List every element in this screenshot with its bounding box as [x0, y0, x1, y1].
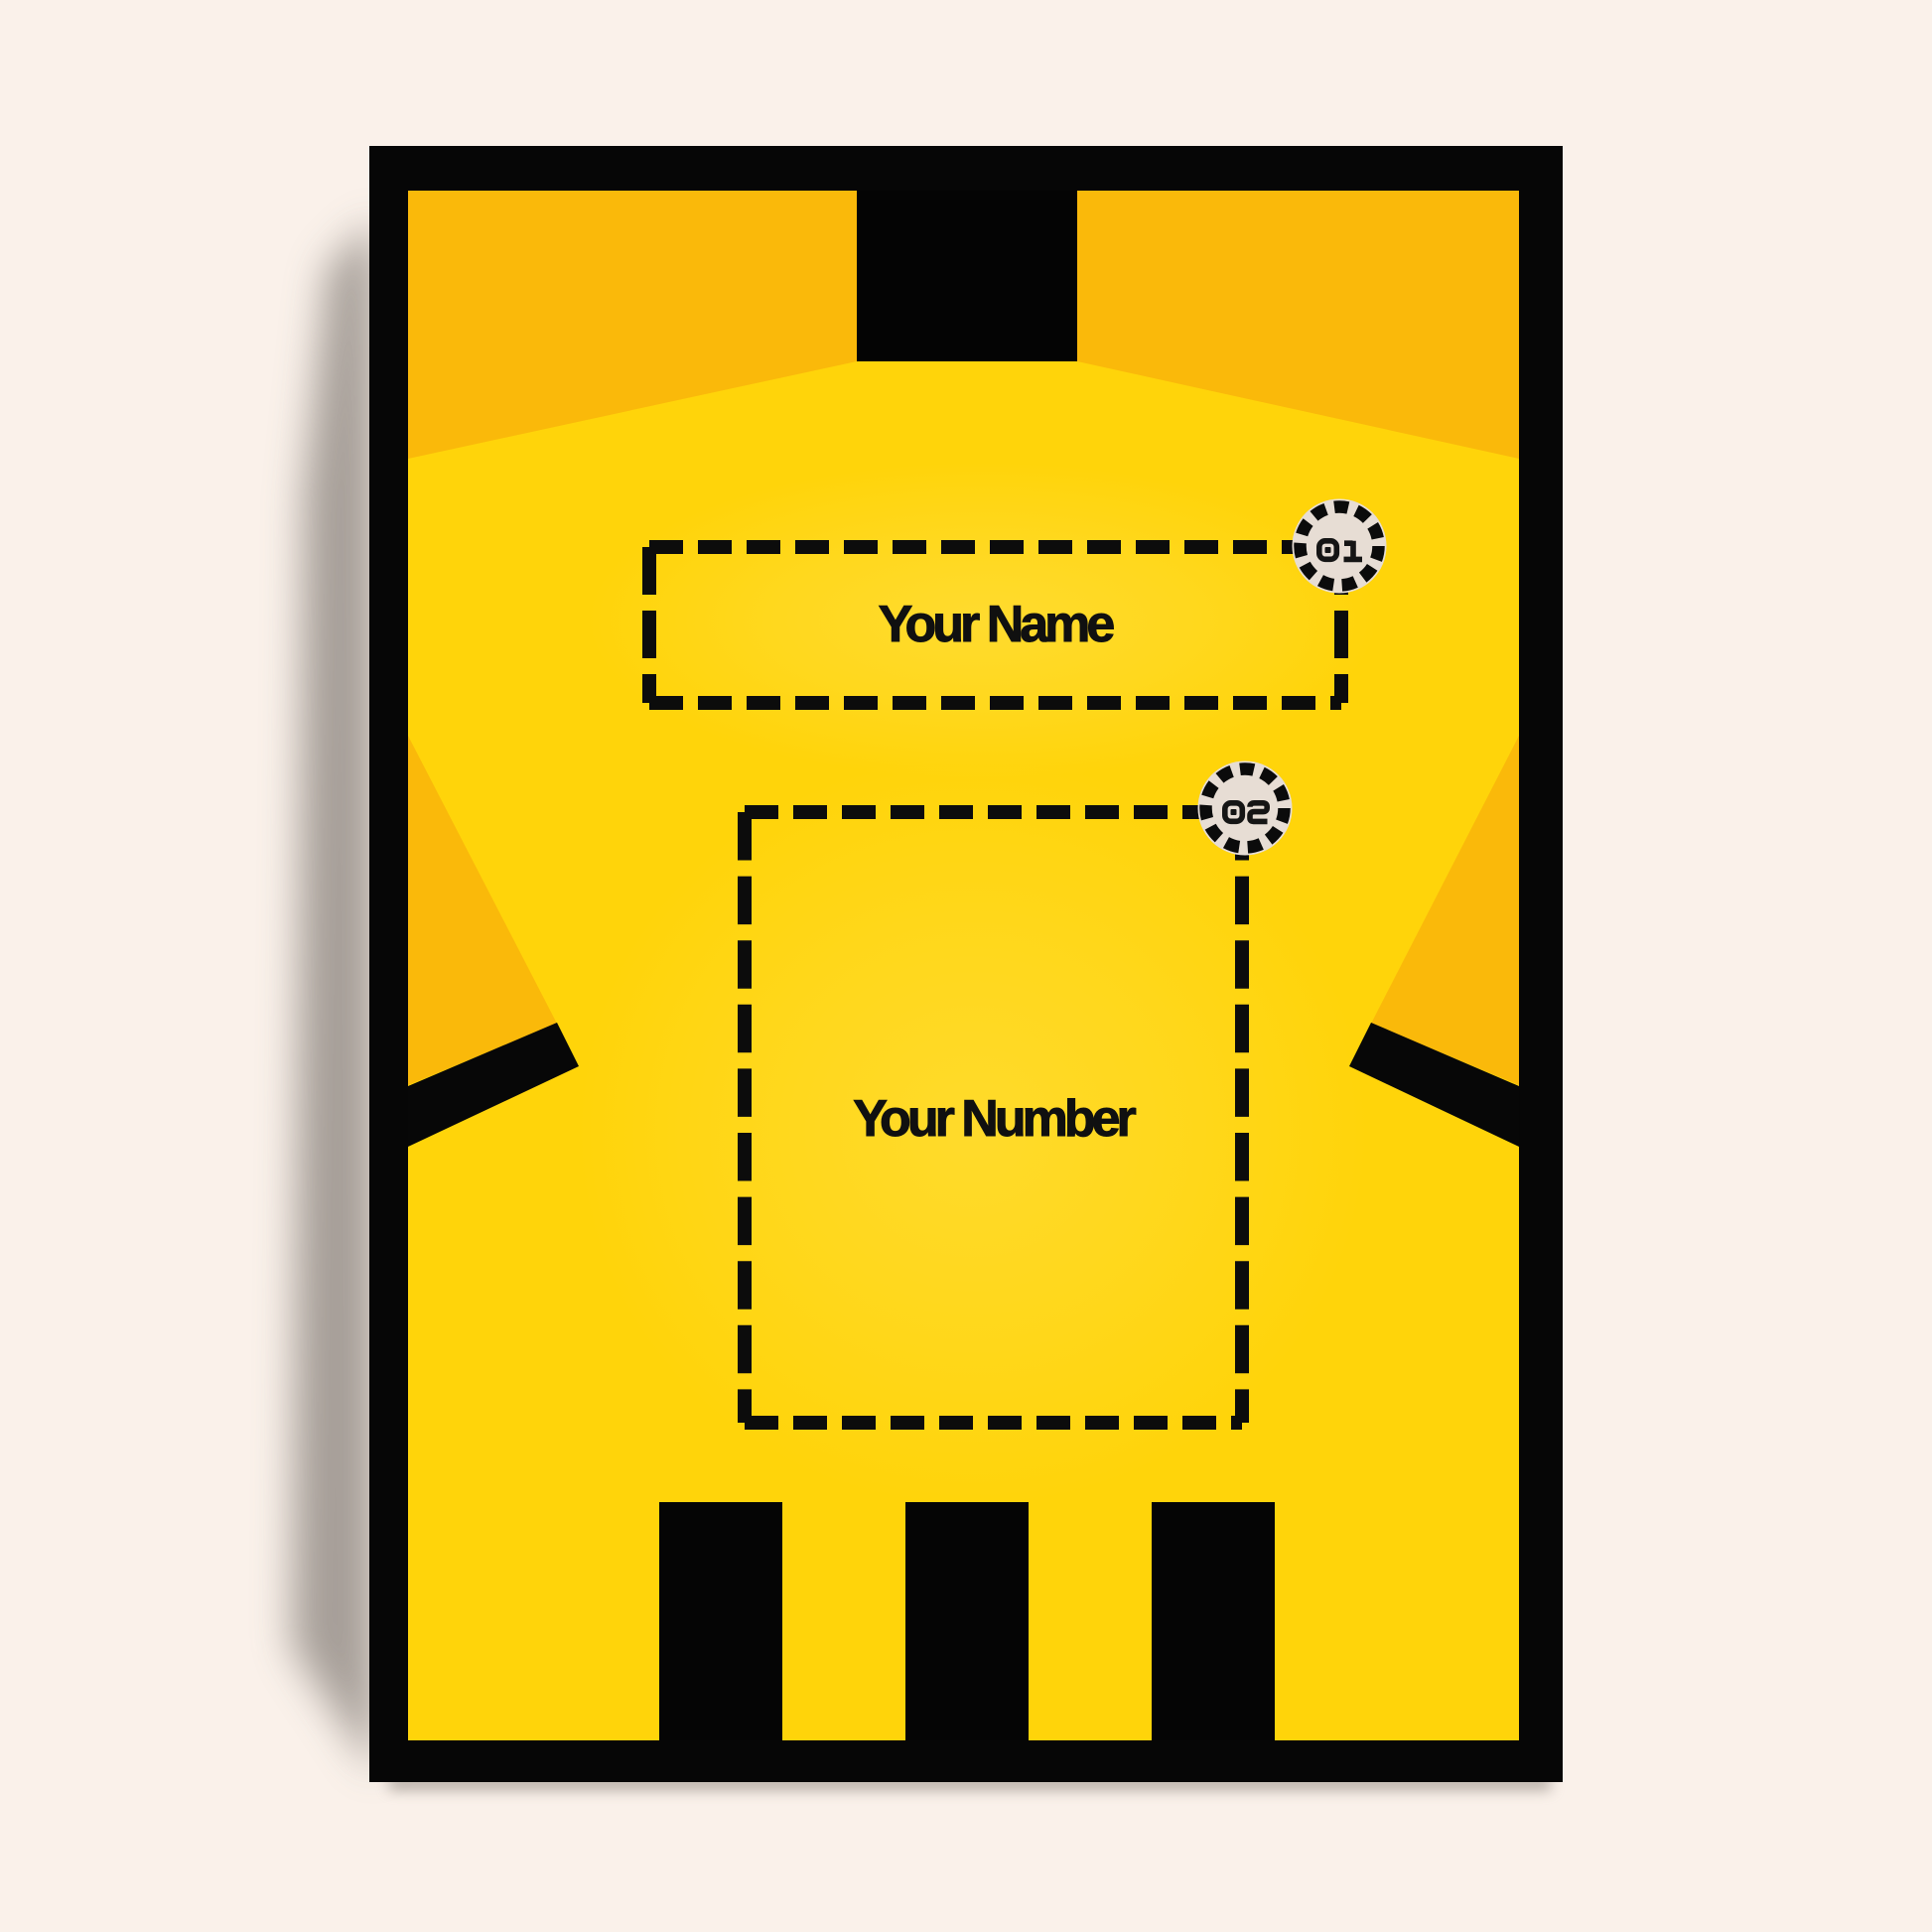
svg-text:Your Number: Your Number — [853, 1090, 1136, 1148]
svg-text:Your Name: Your Name — [879, 596, 1115, 653]
